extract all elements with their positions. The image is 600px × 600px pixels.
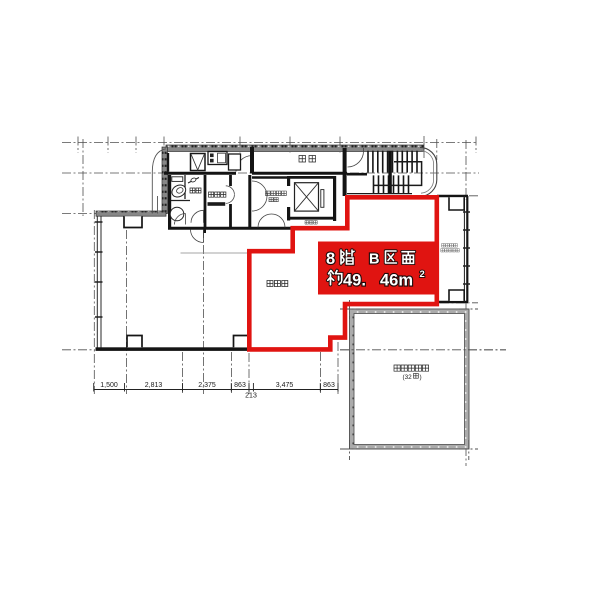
svg-text:1,500: 1,500 [100, 382, 118, 389]
svg-text:8: 8 [326, 250, 335, 268]
svg-text:2,813: 2,813 [145, 382, 163, 389]
svg-text:49.: 49. [343, 272, 366, 290]
svg-text:2,375: 2,375 [198, 382, 216, 389]
svg-text:3,475: 3,475 [276, 382, 294, 389]
svg-text:863: 863 [234, 382, 246, 389]
svg-text:B: B [369, 252, 379, 268]
svg-text:): ) [420, 374, 422, 381]
svg-text:213: 213 [245, 393, 257, 400]
svg-text:863: 863 [323, 382, 335, 389]
svg-text:(32: (32 [403, 374, 413, 381]
svg-text:46m: 46m [380, 272, 413, 290]
svg-text:2: 2 [420, 269, 425, 280]
